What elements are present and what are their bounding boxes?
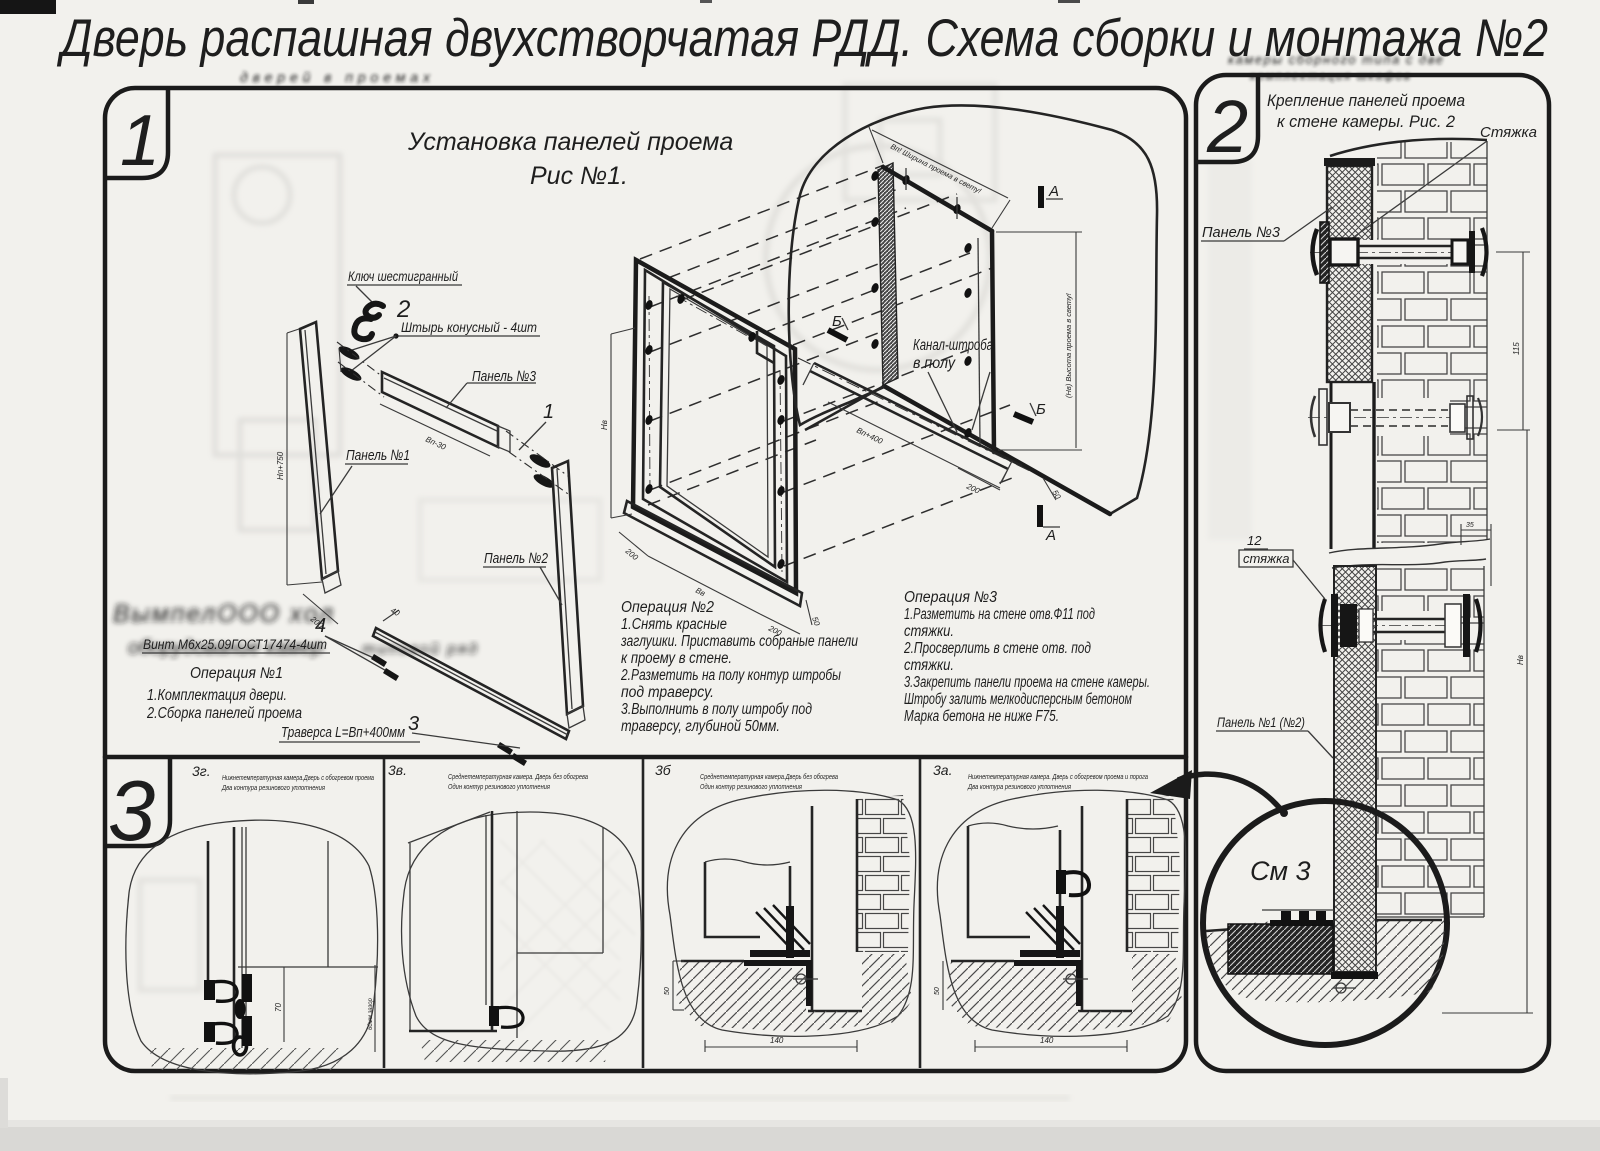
svg-text:А: А [1048,183,1059,200]
svg-text:Панель №1 (№2): Панель №1 (№2) [1217,715,1305,730]
svg-text:к стене камеры. Рис. 2: к стене камеры. Рис. 2 [1277,113,1455,131]
svg-text:Б: Б [1036,401,1046,418]
svg-text:1: 1 [120,101,160,181]
svg-text:Стяжка: Стяжка [1480,124,1537,141]
svg-text:Винт М6х25.09ГОСТ17474-4шт: Винт М6х25.09ГОСТ17474-4шт [143,637,327,652]
svg-text:Крепление панелей проема: Крепление панелей проема [1267,92,1465,110]
svg-text:Ключ шестигранный: Ключ шестигранный [348,269,458,284]
svg-text:Установка панелей проема: Установка панелей проема [407,128,733,156]
svg-text:1: 1 [543,401,554,423]
svg-text:3а.: 3а. [933,762,952,778]
svg-text:Нв: Нв [600,420,609,430]
svg-text:1.Снять красные: 1.Снять красные [621,616,727,633]
svg-text:Панель №2: Панель №2 [484,550,549,567]
svg-text:2.Просверлить в стене отв. п: 2.Просверлить в стене отв. под [903,640,1091,657]
svg-text:2.Сборка панелей проема: 2.Сборка панелей проема [146,705,302,722]
svg-text:3б: 3б [655,762,672,778]
svg-text:50: 50 [934,987,941,995]
svg-text:Среднетемпературная камера. Дв: Среднетемпературная камера. Дверь без об… [448,773,588,781]
svg-text:Два контура резинового уплотне: Два контура резинового уплотнения [221,785,325,792]
svg-text:Дверь распашная двухстворчатая: Дверь распашная двухстворчатая РДД. Схем… [57,9,1548,68]
svg-text:2: 2 [1206,85,1248,168]
svg-text:115: 115 [1512,342,1521,355]
svg-text:60мм зазор: 60мм зазор [368,997,374,1030]
svg-text:70: 70 [274,1003,283,1012]
svg-text:Операция №1: Операция №1 [190,665,283,682]
svg-text:стяжка: стяжка [1243,551,1289,566]
svg-text:(Нв) Высота проема в свету!: (Нв) Высота проема в свету! [1064,292,1073,398]
svg-text:3.Закрепить панели проема на с: 3.Закрепить панели проема на стене камер… [904,674,1150,691]
svg-text:Панель №1: Панель №1 [346,447,410,464]
svg-text:Панель №3: Панель №3 [1202,224,1281,241]
svg-text:Штырь конусный - 4шт: Штырь конусный - 4шт [401,320,537,335]
svg-text:140: 140 [1040,1036,1054,1045]
svg-text:Штробу залить мелкодисперсным: Штробу залить мелкодисперсным бетоном [904,691,1132,708]
svg-text:1.Разметить на стене отв.Ф11 п: 1.Разметить на стене отв.Ф11 под [904,606,1095,623]
svg-text:3: 3 [408,713,419,735]
svg-text:Нижнетемпературная камера.Двер: Нижнетемпературная камера.Дверь с обогре… [222,774,374,782]
svg-text:дверей в проемах: дверей в проемах [240,69,431,85]
svg-text:Траверса L=Вп+400мм: Траверса L=Вп+400мм [281,724,405,741]
svg-text:Нижнетемпературная камера. Две: Нижнетемпературная камера. Дверь с обогр… [968,773,1148,781]
svg-text:См 3: См 3 [1250,856,1311,886]
svg-text:стяжки.: стяжки. [904,657,954,674]
svg-text:50: 50 [664,987,671,995]
svg-text:140: 140 [770,1036,784,1045]
svg-text:Рис №1.: Рис №1. [530,162,628,190]
svg-text:1.Комплектация двери.: 1.Комплектация двери. [147,687,287,704]
svg-text:Канал-штроба: Канал-штроба [913,337,993,354]
svg-text:3г.: 3г. [192,763,211,779]
svg-text:2.Разметить на полу контур штр: 2.Разметить на полу контур штробы [620,667,841,684]
svg-text:Операция №3: Операция №3 [904,589,997,606]
svg-text:траверсу, глубиной 50мм.: траверсу, глубиной 50мм. [621,718,780,735]
svg-text:3в.: 3в. [388,762,407,778]
svg-text:Один контур резинового уплотне: Один контур резинового уплотнения [448,783,550,791]
svg-text:Один контур резинового уплотне: Один контур резинового уплотнения [700,783,802,791]
svg-text:Среднетемпературная камера.Две: Среднетемпературная камера.Дверь без обо… [700,773,838,781]
svg-text:Два контура резинового уплотне: Два контура резинового уплотнения [967,784,1071,791]
svg-text:4: 4 [315,615,326,637]
svg-text:Операция №2: Операция №2 [621,599,714,616]
svg-text:к проему в стене.: к проему в стене. [621,650,732,667]
svg-text:ВымпелООО хол: ВымпелООО хол [113,600,333,628]
svg-text:стяжки.: стяжки. [904,623,954,640]
svg-text:12: 12 [1247,533,1262,548]
svg-text:3.Выполнить в полу штробу под: 3.Выполнить в полу штробу под [621,701,812,718]
svg-text:Марка бетона не ниже F75.: Марка бетона не ниже F75. [904,708,1059,725]
svg-text:Нп+750: Нп+750 [276,451,285,480]
svg-text:А: А [1045,527,1056,544]
svg-text:в полу: в полу [913,355,956,372]
svg-text:Нв: Нв [1516,655,1525,665]
svg-text:Б: Б [832,313,842,330]
svg-text:заглушки. Приставить собраные: заглушки. Приставить собраные панели [620,633,858,650]
svg-text:2: 2 [396,296,410,323]
svg-text:под траверсу.: под траверсу. [621,684,714,701]
svg-text:3: 3 [108,764,155,859]
svg-text:35: 35 [1466,522,1474,529]
